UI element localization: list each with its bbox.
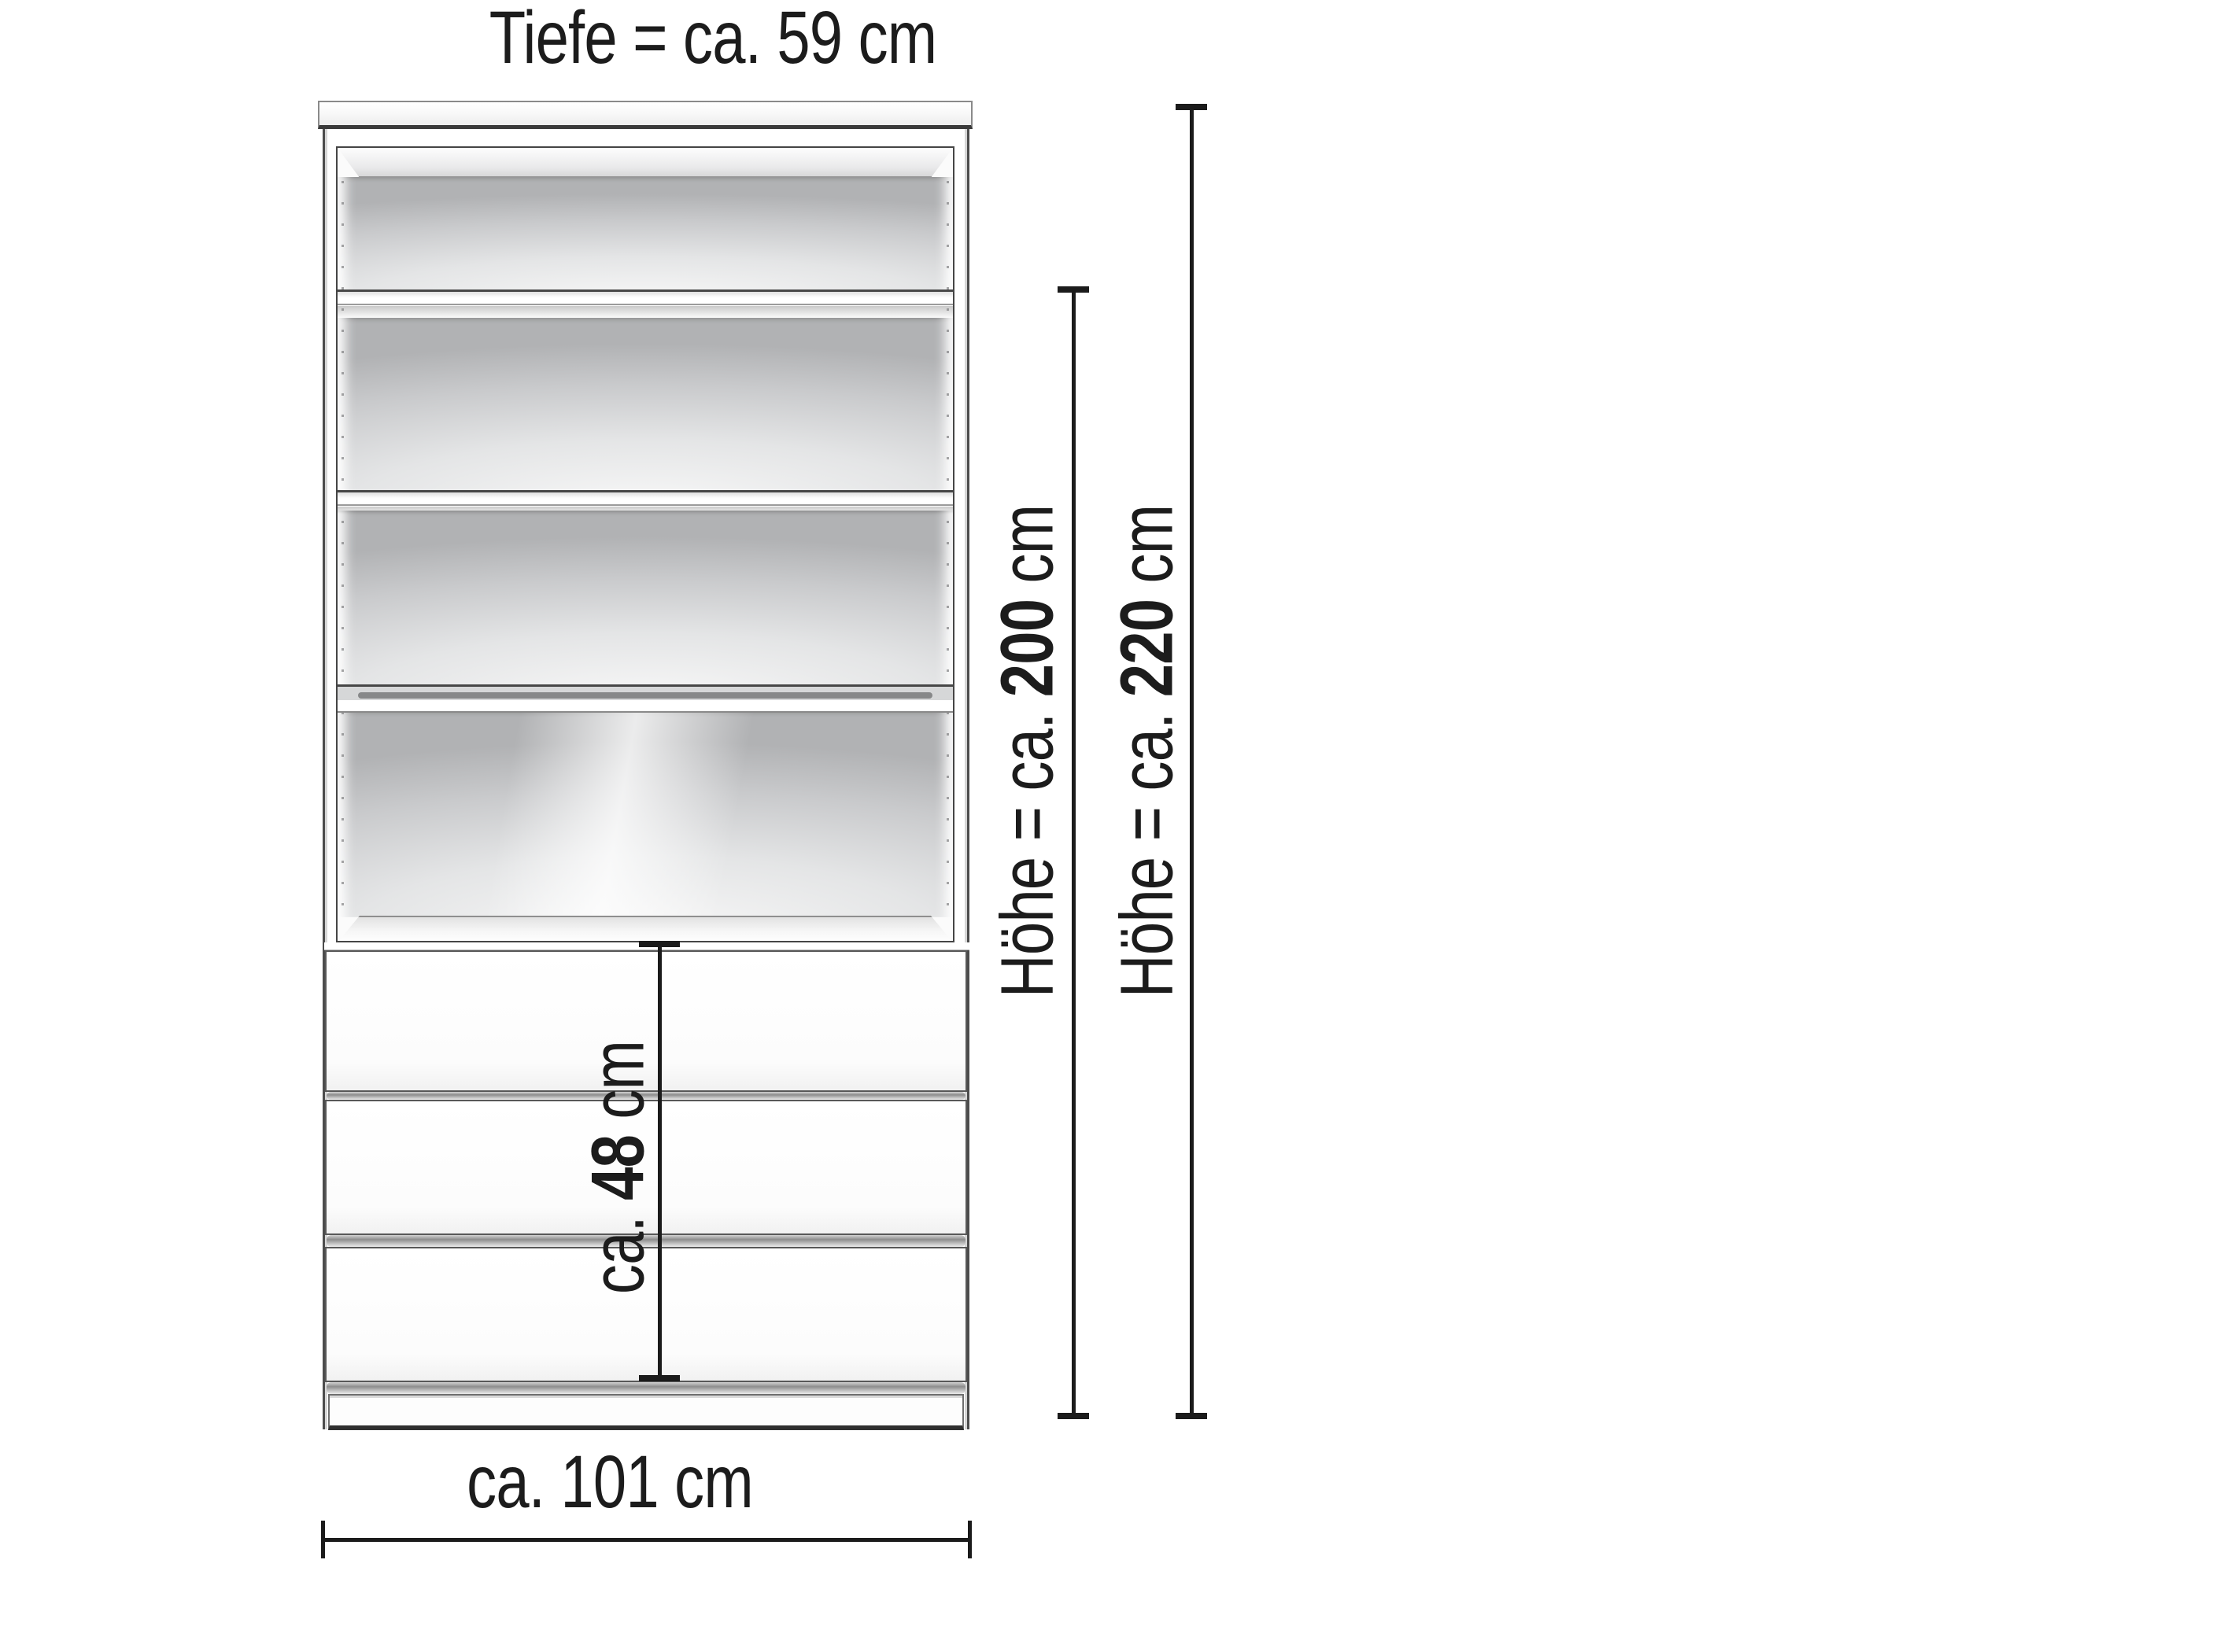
- depth-dimension-label: Tiefe = ca. 59 cm: [461, 0, 965, 81]
- wardrobe-dimension-diagram: Tiefe = ca. 59 cm: [0, 0, 2219, 1652]
- interior-ceiling-bevel: [338, 148, 953, 178]
- inner-height-suffix: cm: [986, 505, 1069, 599]
- shelf-2: [338, 490, 953, 506]
- drawer-section-dimension-label: ca. 48 cm: [576, 1041, 662, 1294]
- interior-floor-bevel: [338, 916, 953, 942]
- dim-101-right-tick: [968, 1521, 972, 1558]
- dim-101-line: [323, 1538, 971, 1542]
- shelf-2-shadow: [338, 507, 953, 514]
- outer-height-suffix: cm: [1106, 505, 1189, 599]
- shelf-3-groove: [358, 692, 932, 699]
- drawer-label-prefix: ca.: [577, 1200, 660, 1294]
- shelf-3-top-surface: [338, 684, 953, 700]
- depth-label-suffix: cm: [842, 0, 936, 79]
- drawer-gap-3: [327, 1382, 966, 1394]
- outer-height-value: 220: [1106, 599, 1189, 697]
- width-label-prefix: ca.: [467, 1440, 560, 1524]
- width-label-suffix: cm: [659, 1440, 753, 1524]
- dim-220-bottom-cap: [1176, 1413, 1207, 1419]
- shelf-1-shadow: [338, 306, 953, 318]
- cabinet-open-interior: [336, 146, 954, 942]
- shelf-1: [338, 289, 953, 305]
- width-label-value: 101: [560, 1440, 658, 1524]
- shelf-3-front-edge: [338, 700, 953, 713]
- compartment-2: [338, 318, 953, 492]
- inner-height-dimension-label: Höhe = ca. 200 cm: [985, 505, 1071, 997]
- drawer-label-value: 48: [577, 1135, 660, 1200]
- compartment-4: [338, 711, 953, 917]
- dim-48-bottom-cap: [639, 1375, 680, 1381]
- compartment-3: [338, 511, 953, 686]
- outer-height-prefix: Höhe = ca.: [1106, 697, 1189, 997]
- inner-height-prefix: Höhe = ca.: [986, 697, 1069, 997]
- cabinet-top-panel: [318, 101, 973, 129]
- dim-220-line: [1190, 107, 1194, 1416]
- plinth-base: [328, 1394, 964, 1430]
- outer-height-dimension-label: Höhe = ca. 220 cm: [1105, 505, 1191, 997]
- depth-label-prefix: Tiefe = ca.: [489, 0, 777, 79]
- drawer-label-suffix: cm: [577, 1041, 660, 1135]
- back-panel-reflection: [338, 711, 953, 917]
- dim-200-line: [1072, 289, 1076, 1416]
- compartment-1: [338, 177, 953, 291]
- depth-label-value: 59: [777, 0, 842, 79]
- dim-200-bottom-cap: [1058, 1413, 1089, 1419]
- inner-height-value: 200: [986, 599, 1069, 697]
- width-dimension-label: ca. 101 cm: [358, 1440, 862, 1525]
